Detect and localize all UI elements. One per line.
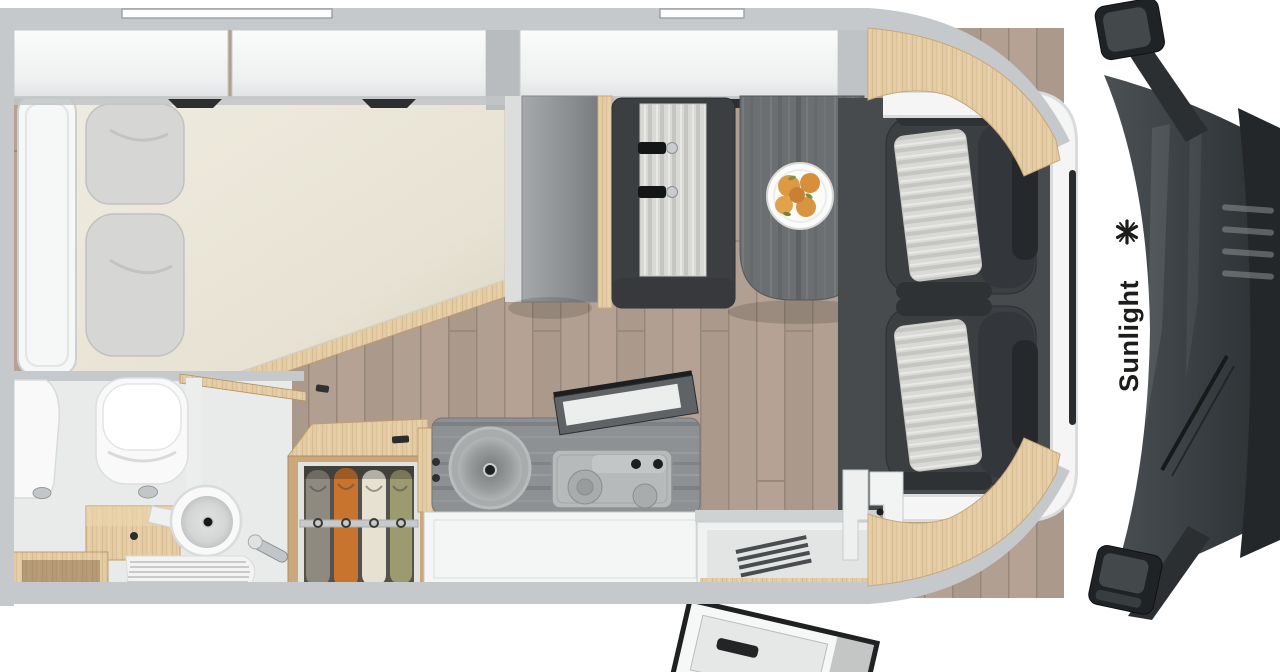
- hob-knob: [631, 459, 641, 469]
- dashboard-window-slit: [1069, 170, 1076, 425]
- toilet-flush-button: [139, 486, 158, 498]
- bed-pillow-bottom: [86, 214, 184, 356]
- locker-segment-1: [14, 30, 228, 98]
- bench-seat-edge: [612, 278, 735, 308]
- gas-hob: [552, 450, 672, 508]
- tall-cabinet-panel: [522, 96, 602, 302]
- seat-armrest: [896, 282, 992, 300]
- step-drain-dot: [130, 532, 138, 540]
- dinette-bench: [598, 96, 735, 308]
- mirror-flush-button: [33, 488, 51, 499]
- bed-pillow-top: [86, 104, 184, 204]
- hob-burner-cap: [577, 479, 593, 495]
- bench-wood-trim: [598, 96, 612, 308]
- seat-armrest: [896, 298, 992, 316]
- hob-knob: [653, 459, 663, 469]
- faucet-knob: [432, 474, 440, 482]
- bathroom-mirror-reflection: [14, 380, 59, 498]
- seat-belt-1: [638, 142, 678, 154]
- sunlight-wordmark: Sunlight: [1114, 280, 1144, 392]
- dinette-area: [505, 96, 872, 324]
- wardrobe-vent: [392, 435, 409, 443]
- seat-headrest: [1012, 340, 1038, 450]
- floor-plan-render: Sunlight: [0, 0, 1280, 672]
- wardrobe: [288, 419, 428, 598]
- toilet-lid: [103, 384, 181, 450]
- sink-drain: [484, 464, 496, 476]
- hob-burner: [633, 484, 657, 508]
- rear-wall: [0, 8, 14, 606]
- fruit: [789, 187, 805, 203]
- fruit-plate: [767, 163, 833, 229]
- faucet-knob: [432, 458, 440, 466]
- washbasin-drain: [203, 517, 214, 528]
- mirror-glass: [1102, 6, 1152, 53]
- roof-vent-1: [122, 9, 332, 18]
- roof-vent-2: [660, 9, 744, 18]
- seat-armrest: [896, 472, 992, 490]
- wardrobe-top-shadow: [304, 466, 414, 479]
- cabinet-shadow: [508, 297, 592, 319]
- seat-belt-2: [638, 186, 678, 198]
- motorhome-floor-plan: Sunlight: [0, 0, 1280, 672]
- locker-segment-2: [232, 30, 486, 98]
- bathroom: [12, 371, 329, 600]
- locker-segment-3: [520, 30, 838, 98]
- pillar-bolt: [877, 509, 884, 516]
- cabinet-side-wall: [505, 96, 522, 302]
